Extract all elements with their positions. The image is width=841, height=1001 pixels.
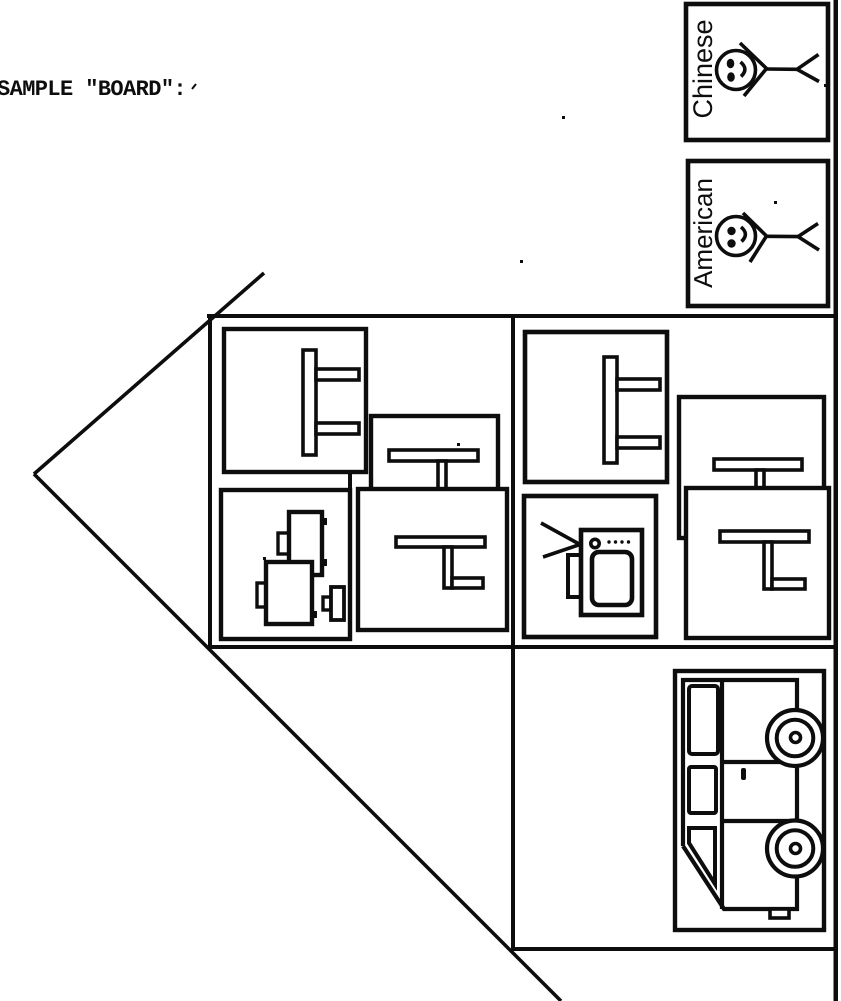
svg-text:American: American [688,178,718,288]
svg-text:Chinese: Chinese [688,19,718,118]
svg-text:SAMPLE "BOARD":: SAMPLE "BOARD": [0,77,186,102]
